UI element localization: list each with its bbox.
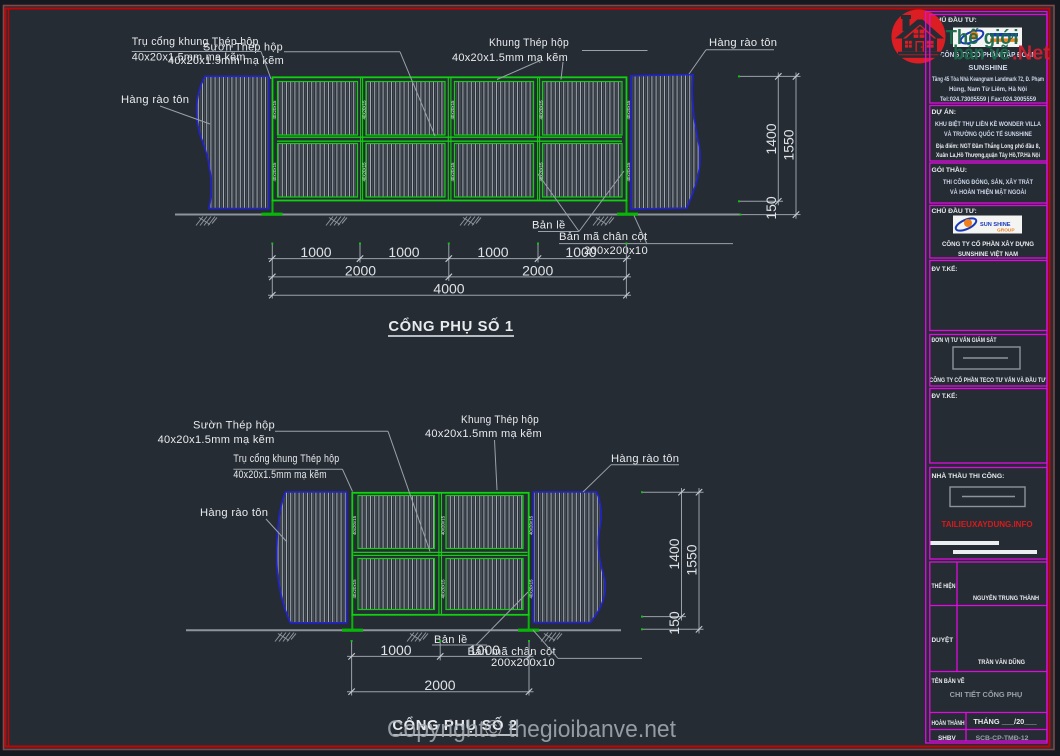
svg-text:Địa điểm: NGT Đầm Thắng Long p: Địa điểm: NGT Đầm Thắng Long phố đầu 8, <box>936 143 1040 150</box>
svg-text:TÊN BẢN VẼ: TÊN BẢN VẼ <box>932 676 966 685</box>
svg-text:150: 150 <box>666 611 682 635</box>
svg-text:THÁNG ___/20___: THÁNG ___/20___ <box>973 717 1037 726</box>
svg-text:40x20x15: 40x20x15 <box>352 515 357 535</box>
svg-text:1550: 1550 <box>781 129 797 160</box>
svg-text:1000: 1000 <box>380 642 411 658</box>
svg-text:40x20x15: 40x20x15 <box>528 579 533 599</box>
svg-text:Hàng rào tôn: Hàng rào tôn <box>611 453 679 465</box>
svg-text:THI CÔNG ĐÓNG, SẢN, XÂY TRÁT: THI CÔNG ĐÓNG, SẢN, XÂY TRÁT <box>943 177 1033 186</box>
svg-text:SUN SHINE: SUN SHINE <box>980 222 1011 228</box>
svg-text:1000: 1000 <box>388 244 419 260</box>
svg-text:VÀ HOÀN THIỆN MẶT NGOÀI: VÀ HOÀN THIỆN MẶT NGOÀI <box>950 187 1026 196</box>
svg-text:2000: 2000 <box>522 262 553 278</box>
svg-text:40x20x1.5mm mạ kẽm: 40x20x1.5mm mạ kẽm <box>425 428 542 440</box>
svg-text:THỂ HIỆN: THỂ HIỆN <box>932 581 956 590</box>
svg-text:40x20x15: 40x20x15 <box>538 100 543 120</box>
svg-text:.Net: .Net <box>1012 42 1050 64</box>
svg-text:40x20x15: 40x20x15 <box>450 100 455 120</box>
svg-text:NGUYỄN TRUNG THÀNH: NGUYỄN TRUNG THÀNH <box>973 593 1039 602</box>
svg-text:ĐƠN VỊ TƯ VẤN GIÁM SÁT: ĐƠN VỊ TƯ VẤN GIÁM SÁT <box>932 337 997 344</box>
svg-text:SUNSHINE VIỆT NAM: SUNSHINE VIỆT NAM <box>958 249 1018 258</box>
svg-text:Hàng rào tôn: Hàng rào tôn <box>709 37 777 49</box>
svg-text:DUYỆT: DUYỆT <box>932 635 954 644</box>
svg-text:ĐV T.KẾ:: ĐV T.KẾ: <box>932 393 958 400</box>
svg-text:40x20x15: 40x20x15 <box>361 100 366 120</box>
svg-text:HOÀN THÀNH: HOÀN THÀNH <box>932 720 965 727</box>
svg-text:1000: 1000 <box>300 244 331 260</box>
svg-text:40x20x15: 40x20x15 <box>441 515 446 535</box>
svg-text:40x20x15: 40x20x15 <box>352 579 357 599</box>
svg-text:40x20x15: 40x20x15 <box>361 162 366 182</box>
svg-text:200x200x10: 200x200x10 <box>491 657 555 669</box>
svg-text:1000: 1000 <box>477 244 508 260</box>
svg-text:Tầng 45 Tòa Nhà Keangnam Landm: Tầng 45 Tòa Nhà Keangnam Landmark 72, Đ.… <box>932 76 1044 83</box>
svg-text:150: 150 <box>763 196 779 220</box>
svg-text:Hàng rào tôn: Hàng rào tôn <box>121 94 189 106</box>
svg-text:40x20x1.5mm mạ kẽm: 40x20x1.5mm mạ kẽm <box>452 52 568 64</box>
svg-text:Hùng, Nam Từ Liêm, Hà Nội: Hùng, Nam Từ Liêm, Hà Nội <box>949 86 1027 93</box>
svg-text:1400: 1400 <box>763 123 779 154</box>
svg-text:40x20x1.5mm mạ kẽm: 40x20x1.5mm mạ kẽm <box>233 469 327 481</box>
svg-text:CỔNG PHỤ SỐ 1: CỔNG PHỤ SỐ 1 <box>388 317 513 335</box>
svg-text:Xuân La,Hồ Thượng,quận Tây Hồ,: Xuân La,Hồ Thượng,quận Tây Hồ,TP.Hà Nội <box>936 153 1040 159</box>
svg-text:ĐV T.KẾ:: ĐV T.KẾ: <box>932 266 958 273</box>
svg-text:40x20x15: 40x20x15 <box>626 162 631 182</box>
svg-text:Hàng rào tôn: Hàng rào tôn <box>200 507 268 519</box>
svg-text:bản vẽ: bản vẽ <box>953 42 1009 64</box>
svg-text:40x20x15: 40x20x15 <box>450 162 455 182</box>
svg-text:40x20x15: 40x20x15 <box>272 100 277 120</box>
svg-text:Copyright© thegioibanve.net: Copyright© thegioibanve.net <box>387 716 676 743</box>
svg-text:40x20x15: 40x20x15 <box>626 100 631 120</box>
svg-text:2000: 2000 <box>424 677 455 693</box>
svg-text:4000: 4000 <box>433 281 464 297</box>
svg-text:GROUP: GROUP <box>997 228 1015 234</box>
svg-text:40x20x15: 40x20x15 <box>528 515 533 535</box>
svg-text:Bản mã chân cột: Bản mã chân cột <box>559 231 648 243</box>
svg-text:40x20x15: 40x20x15 <box>272 162 277 182</box>
svg-text:CHI TIẾT CỔNG PHỤ: CHI TIẾT CỔNG PHỤ <box>950 689 1023 699</box>
svg-text:Bản lề: Bản lề <box>434 634 468 646</box>
svg-text:40x20x1.5mm mạ kẽm: 40x20x1.5mm mạ kẽm <box>168 55 284 67</box>
svg-text:2000: 2000 <box>345 262 376 278</box>
svg-text:Bản lề: Bản lề <box>532 220 566 232</box>
svg-text:40x20x1.5mm mạ kẽm: 40x20x1.5mm mạ kẽm <box>158 434 275 446</box>
svg-text:1000: 1000 <box>565 244 596 260</box>
svg-text:Khung Thép hộp: Khung Thép hộp <box>489 37 569 49</box>
svg-text:40x20x15: 40x20x15 <box>441 579 446 599</box>
svg-text:1400: 1400 <box>666 538 682 569</box>
svg-text:Trụ cổng khung Thép hộp: Trụ cổng khung Thép hộp <box>233 453 339 465</box>
svg-text:Tel:024.73005559 | Fax:024.300: Tel:024.73005559 | Fax:024.3005559 <box>940 96 1037 103</box>
svg-text:1000: 1000 <box>469 642 500 658</box>
svg-text:Sườn Thép hộp: Sườn Thép hộp <box>193 420 275 432</box>
svg-text:1550: 1550 <box>684 544 700 575</box>
svg-text:SUNSHINE: SUNSHINE <box>968 63 1007 72</box>
svg-text:Khung Thép hộp: Khung Thép hộp <box>461 414 539 426</box>
svg-text:TAILIEUXAYDUNG.INFO: TAILIEUXAYDUNG.INFO <box>941 520 1032 529</box>
svg-text:DỰ ÁN:: DỰ ÁN: <box>932 107 957 116</box>
